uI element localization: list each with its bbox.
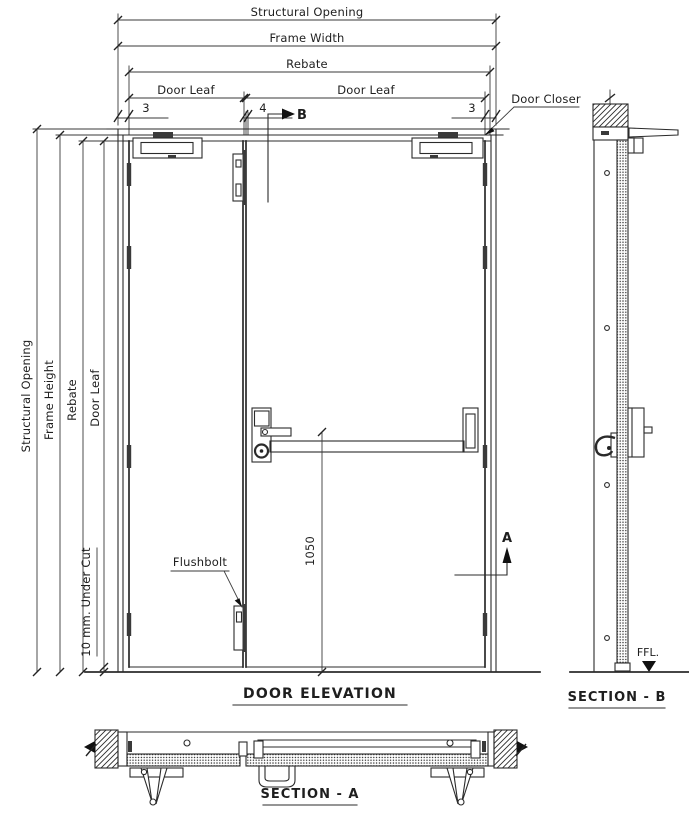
elevation-title: DOOR ELEVATION bbox=[243, 686, 397, 702]
door-frame bbox=[107, 129, 509, 672]
dim-frame-width: Frame Width bbox=[269, 31, 344, 45]
frame-jamb-right-plan bbox=[488, 732, 494, 766]
latch-pin bbox=[644, 427, 652, 433]
wall-lintel-hatch bbox=[593, 104, 628, 127]
flushbolt-top bbox=[233, 150, 247, 205]
top-dimension-lines: Structural Opening Frame Width Rebate Do… bbox=[114, 5, 500, 135]
dim-rebate-height: Rebate bbox=[65, 379, 79, 421]
door-closer-right bbox=[412, 132, 483, 158]
ffl-marker: FFL. bbox=[637, 646, 659, 672]
frame-jamb-left-plan bbox=[118, 732, 127, 766]
section-a-letter: A bbox=[502, 531, 512, 546]
section-a-arrow-icon bbox=[503, 547, 512, 563]
wall-hatch-right bbox=[494, 730, 517, 768]
door-bottom-seal bbox=[615, 663, 630, 671]
section-a-view: SECTION - A bbox=[84, 730, 528, 805]
level-triangle-icon bbox=[642, 661, 656, 672]
door-leaf-left-plan bbox=[127, 754, 240, 766]
dim-under-cut: 10 mm. Under Cut bbox=[79, 547, 93, 657]
door-closer-arms-right bbox=[431, 768, 484, 805]
section-a-title: SECTION - A bbox=[261, 787, 360, 802]
hinge bbox=[127, 613, 131, 636]
dim-gap-right: 3 bbox=[468, 101, 476, 115]
door-leaf-right-plan bbox=[246, 754, 488, 766]
fixing-screw bbox=[447, 740, 453, 746]
dim-door-leaf-left: Door Leaf bbox=[157, 83, 215, 97]
flushbolt-label: Flushbolt bbox=[173, 555, 228, 569]
flushbolt-plan bbox=[239, 742, 247, 756]
hinge bbox=[483, 613, 487, 636]
panic-exit-bar bbox=[252, 408, 478, 462]
section-b-view: FFL. SECTION - B bbox=[568, 90, 689, 708]
dim-structural-opening-height: Structural Opening bbox=[19, 340, 33, 453]
hinge bbox=[127, 246, 131, 269]
hinge bbox=[483, 163, 487, 186]
section-b-letter: B bbox=[297, 108, 307, 123]
frame-head-section bbox=[593, 127, 628, 140]
push-bar bbox=[270, 441, 464, 452]
door-closer-arms-left bbox=[130, 768, 183, 805]
fixing-screws bbox=[605, 171, 610, 641]
hinge bbox=[127, 445, 131, 468]
dim-gap-left: 3 bbox=[142, 101, 150, 115]
dim-rebate-width: Rebate bbox=[286, 57, 328, 71]
section-a-cut-marker: A bbox=[455, 531, 512, 575]
door-closer-label: Door Closer bbox=[511, 92, 581, 106]
hinge bbox=[483, 246, 487, 269]
door-closer-left bbox=[133, 132, 202, 158]
left-dimension-lines: Structural Opening Frame Height Rebate D… bbox=[19, 125, 125, 676]
pull-handle-plan bbox=[259, 766, 295, 787]
hinge bbox=[483, 445, 487, 468]
fixing-screw bbox=[184, 740, 190, 746]
break-arrow-icon bbox=[517, 741, 528, 753]
flushbolt-bottom bbox=[234, 604, 247, 652]
door-closer-bracket bbox=[628, 138, 643, 153]
wall-hatch-left bbox=[95, 730, 118, 768]
dim-gap-middle: 4 bbox=[259, 101, 267, 115]
flushbolt-callout: Flushbolt bbox=[171, 555, 242, 607]
elevation-view: B Door Closer Flushbolt bbox=[85, 92, 581, 705]
dim-frame-height: Frame Height bbox=[42, 360, 56, 440]
dim-1050: 1050 bbox=[303, 536, 317, 566]
bar-height-dimension: 1050 bbox=[303, 428, 326, 676]
dim-door-leaf-right: Door Leaf bbox=[337, 83, 395, 97]
hinge bbox=[127, 163, 131, 186]
dim-door-leaf-height: Door Leaf bbox=[88, 369, 102, 427]
ffl-label: FFL. bbox=[637, 646, 659, 659]
door-leaves bbox=[129, 141, 485, 667]
section-b-title: SECTION - B bbox=[568, 690, 667, 705]
door-closer-arm bbox=[629, 128, 678, 137]
drawing-sheet: Structural Opening Frame Width Rebate Do… bbox=[0, 0, 689, 821]
door-leaf-section bbox=[617, 140, 628, 663]
door-drawing: Structural Opening Frame Width Rebate Do… bbox=[0, 0, 689, 821]
section-b-cut-marker: B bbox=[268, 108, 307, 202]
dim-structural-opening-width: Structural Opening bbox=[251, 5, 364, 19]
bar-end-section bbox=[596, 437, 615, 456]
